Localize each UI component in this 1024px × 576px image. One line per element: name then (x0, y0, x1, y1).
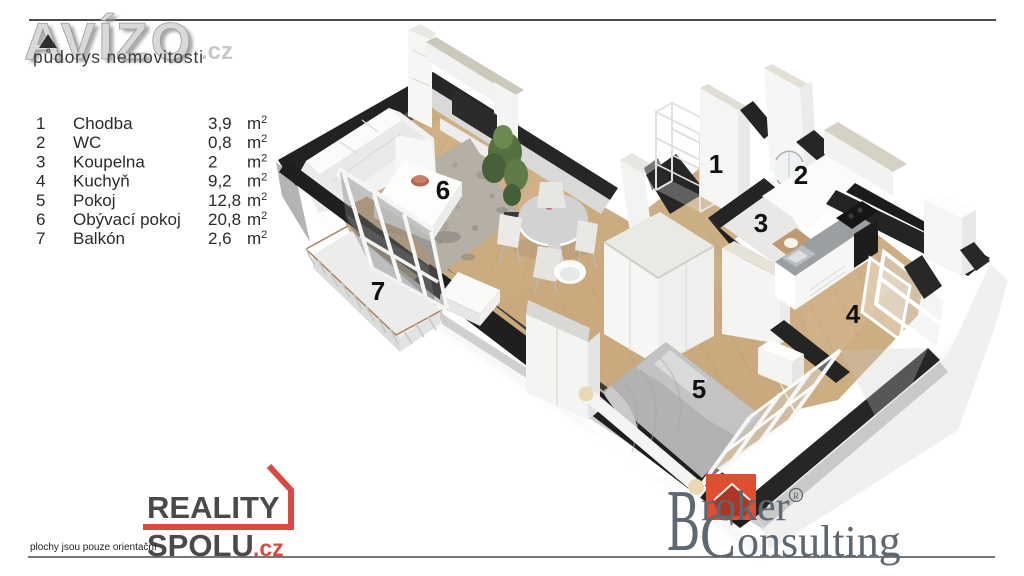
svg-text:9,2: 9,2 (208, 172, 232, 191)
svg-text:12,8: 12,8 (208, 191, 241, 210)
svg-text:2: 2 (794, 160, 808, 190)
svg-text:onsulting: onsulting (737, 517, 901, 566)
svg-text:Koupelna: Koupelna (73, 152, 145, 171)
svg-text:2,6: 2,6 (208, 229, 232, 248)
svg-text:4: 4 (36, 172, 45, 191)
svg-text:3: 3 (754, 208, 768, 238)
svg-text:2: 2 (36, 133, 45, 152)
svg-text:6: 6 (36, 210, 45, 229)
svg-text:5: 5 (692, 374, 706, 404)
svg-text:7: 7 (36, 229, 45, 248)
svg-text:půdorys nemovitosti: půdorys nemovitosti (33, 47, 204, 67)
svg-text:20,8: 20,8 (208, 210, 241, 229)
svg-text:C: C (700, 500, 736, 571)
svg-text:Kuchyň: Kuchyň (73, 172, 130, 191)
svg-text:7: 7 (371, 276, 385, 306)
svg-text:B: B (667, 473, 700, 570)
svg-text:Chodba: Chodba (73, 114, 133, 133)
svg-text:3,9: 3,9 (208, 114, 232, 133)
svg-text:0,8: 0,8 (208, 133, 232, 152)
svg-text:6: 6 (436, 175, 450, 205)
svg-text:Obývací pokoj: Obývací pokoj (73, 210, 181, 229)
svg-text:1: 1 (36, 114, 45, 133)
svg-text:5: 5 (36, 191, 45, 210)
svg-text:4: 4 (846, 299, 861, 329)
svg-text:WC: WC (73, 133, 101, 152)
svg-text:Pokoj: Pokoj (73, 191, 116, 210)
svg-text:plochy jsou pouze orientační: plochy jsou pouze orientační (30, 542, 157, 553)
svg-text:3: 3 (36, 152, 45, 171)
svg-text:REALITY: REALITY (147, 490, 280, 525)
svg-text:1: 1 (709, 149, 723, 179)
svg-text:Balkón: Balkón (73, 229, 125, 248)
svg-text:2: 2 (208, 152, 217, 171)
svg-text:R: R (793, 491, 799, 501)
svg-text:.cz: .cz (201, 38, 233, 65)
